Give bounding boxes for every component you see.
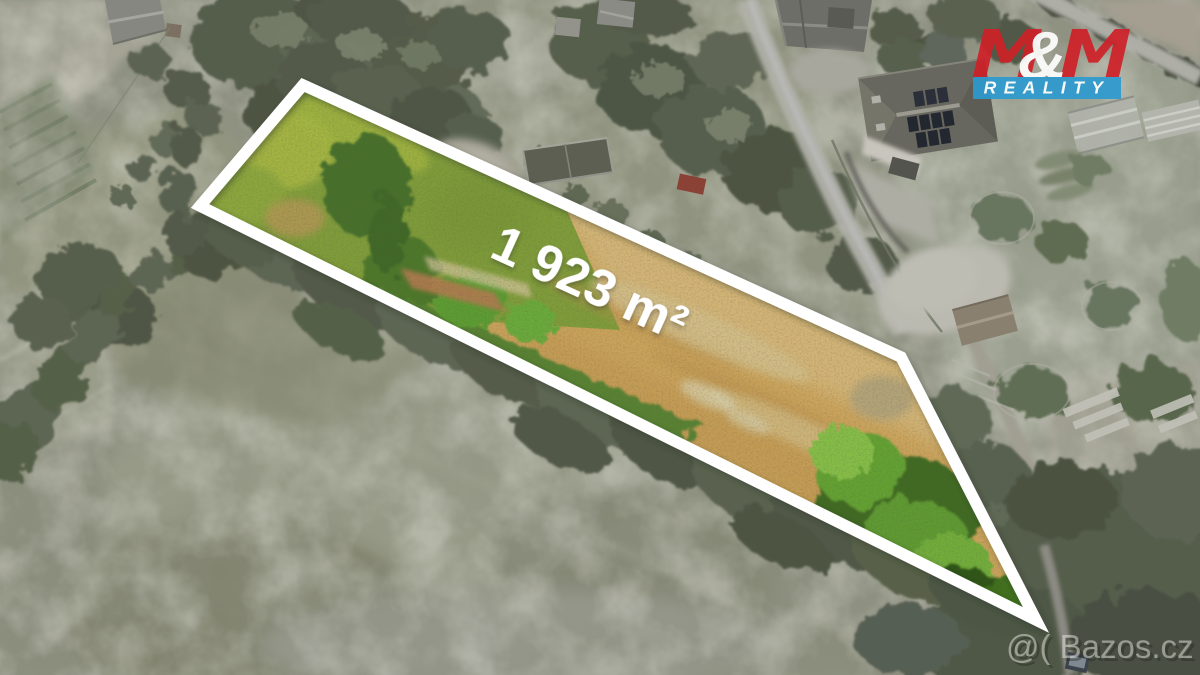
- svg-text:REALITY: REALITY: [984, 78, 1111, 98]
- svg-text:@( Bazos.cz: @( Bazos.cz: [1006, 628, 1194, 665]
